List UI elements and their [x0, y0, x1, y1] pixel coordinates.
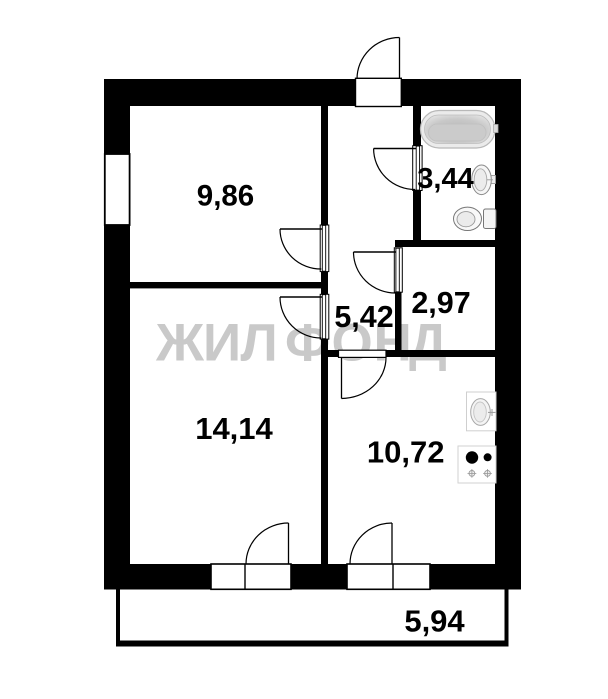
svg-text:5,94: 5,94 — [404, 604, 465, 639]
svg-text:2,97: 2,97 — [411, 286, 470, 320]
svg-text:14,14: 14,14 — [195, 411, 273, 446]
svg-text:ЖИЛФОНД: ЖИЛФОНД — [155, 314, 447, 373]
svg-text:9,86: 9,86 — [197, 179, 254, 212]
svg-text:3,44: 3,44 — [417, 163, 473, 195]
svg-text:5,42: 5,42 — [334, 300, 393, 334]
svg-text:10,72: 10,72 — [367, 435, 445, 470]
